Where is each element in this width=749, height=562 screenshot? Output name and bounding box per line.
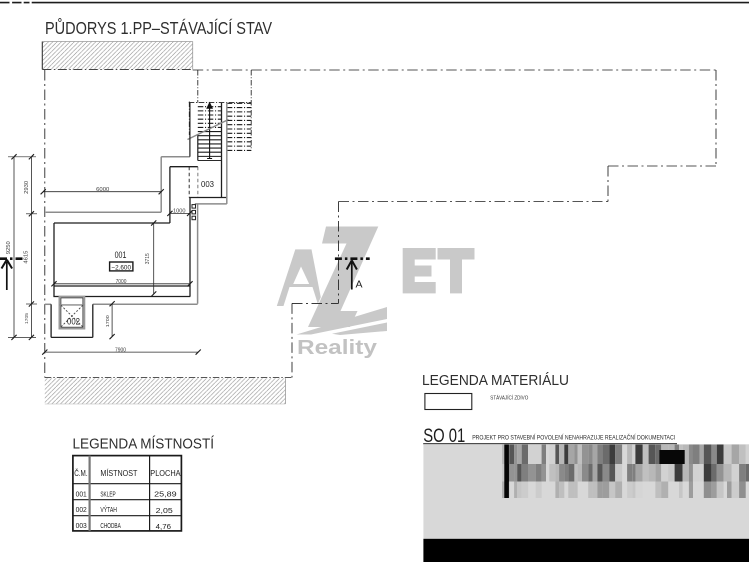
svg-text:002: 002	[76, 507, 87, 514]
svg-text:001: 001	[115, 250, 127, 260]
svg-text:003: 003	[76, 523, 87, 530]
svg-text:CHODBA: CHODBA	[100, 523, 121, 530]
svg-text:2,05: 2,05	[156, 508, 173, 515]
svg-text:9250: 9250	[6, 241, 12, 254]
svg-text:002: 002	[67, 317, 80, 327]
svg-text:LEGENDA MATERIÁLU: LEGENDA MATERIÁLU	[422, 372, 569, 389]
svg-text:PŮDORYS 1.PP–STÁVAJÍCÍ STAV: PŮDORYS 1.PP–STÁVAJÍCÍ STAV	[45, 17, 272, 38]
svg-text:1700: 1700	[105, 315, 111, 327]
svg-text:3715: 3715	[145, 253, 151, 264]
svg-text:2930: 2930	[24, 181, 30, 194]
svg-text:STÁVAJÍCÍ ZDIVO: STÁVAJÍCÍ ZDIVO	[490, 395, 528, 402]
svg-text:4,76: 4,76	[156, 524, 171, 531]
svg-text:003: 003	[201, 179, 214, 189]
svg-text:Reality: Reality	[297, 336, 378, 359]
svg-text:LEGENDA MÍSTNOSTÍ: LEGENDA MÍSTNOSTÍ	[73, 436, 215, 453]
svg-text:001: 001	[76, 491, 87, 498]
svg-text:Č.M.: Č.M.	[74, 469, 87, 478]
svg-text:4615: 4615	[23, 250, 29, 263]
svg-text:MÍSTNOST: MÍSTNOST	[100, 469, 137, 478]
svg-text:SKLEP: SKLEP	[100, 491, 116, 498]
svg-text:PLOCHA: PLOCHA	[150, 469, 181, 478]
svg-text:25,89: 25,89	[154, 492, 177, 499]
svg-text:7900: 7900	[115, 347, 126, 353]
svg-text:1705: 1705	[24, 313, 29, 324]
svg-text:6000: 6000	[96, 187, 109, 193]
svg-text:7000: 7000	[116, 279, 127, 285]
svg-text:PROJEKT PRO STAVEBNÍ POVOLENÍ: PROJEKT PRO STAVEBNÍ POVOLENÍ NENAHRAZUJ…	[472, 434, 675, 441]
svg-text:VÝTAH: VÝTAH	[100, 505, 117, 514]
svg-text:−2.600: −2.600	[111, 264, 131, 271]
svg-text:1000: 1000	[173, 208, 186, 214]
svg-text:A: A	[356, 279, 363, 291]
